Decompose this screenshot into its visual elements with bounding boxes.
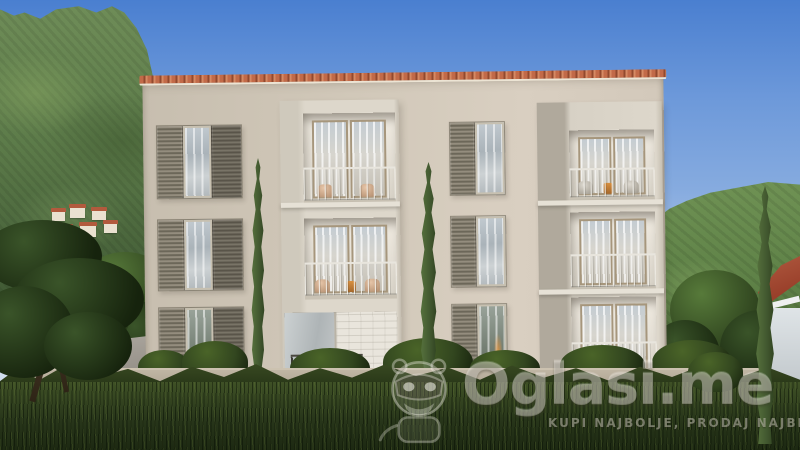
bush	[688, 352, 743, 392]
village-house	[70, 208, 85, 218]
shuttered-window-top-left	[156, 124, 243, 199]
floor-slab	[539, 288, 664, 295]
window-glass	[476, 216, 506, 286]
window-shutter	[451, 217, 477, 287]
balcony-railing	[305, 261, 397, 295]
floor-slab	[538, 199, 663, 206]
floor-slab	[281, 201, 400, 207]
shuttered-window-mid-center	[450, 215, 507, 288]
balcony-top	[303, 112, 396, 204]
window-glass	[184, 220, 213, 290]
window-shutter	[157, 126, 184, 198]
architectural-render: Oglasi.me KUPI NAJBOLJE, PRODAJ NAJBRŽE	[0, 0, 800, 450]
balcony-middle	[570, 211, 656, 291]
balcony-bay-left	[280, 99, 402, 378]
village-house	[92, 211, 106, 220]
window-shutter	[158, 220, 185, 290]
window-shutter	[450, 123, 476, 195]
window-shutter	[212, 219, 243, 289]
apartment-building	[142, 76, 667, 380]
balcony-railing	[303, 166, 395, 200]
pine-tree	[0, 220, 152, 405]
balcony-railing	[571, 253, 656, 287]
window-glass	[183, 126, 212, 198]
balcony-bay-right	[537, 101, 665, 376]
balcony-railing	[569, 167, 654, 197]
window-glass	[475, 122, 505, 194]
balcony-top	[569, 129, 655, 201]
shuttered-window-top-center	[449, 121, 506, 196]
shuttered-window-mid-left	[157, 218, 244, 291]
pine-canopy	[44, 312, 132, 380]
window-shutter	[211, 125, 242, 197]
balcony-middle	[304, 217, 397, 299]
